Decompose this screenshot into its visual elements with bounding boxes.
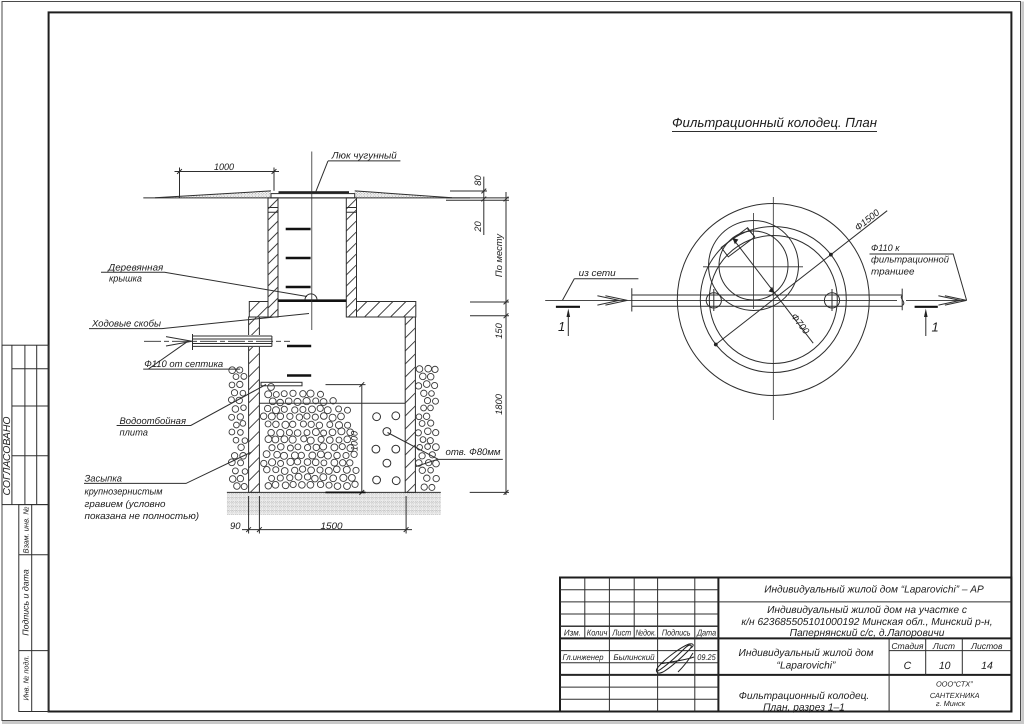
svg-text:отв. Ф80мм: отв. Ф80мм: [446, 447, 501, 458]
svg-text:показана не полностью): показана не полностью): [85, 511, 200, 522]
svg-text:Стадия: Стадия: [891, 641, 924, 651]
svg-text:крышка: крышка: [109, 273, 142, 284]
svg-text:Ходовые скобы: Ходовые скобы: [91, 319, 161, 330]
svg-text:Деревянная: Деревянная: [107, 262, 163, 273]
svg-text:Папернянский с/с, д.Лапоровичи: Папернянский с/с, д.Лапоровичи: [790, 628, 945, 639]
svg-text:фильтрационной: фильтрационной: [871, 254, 950, 265]
svg-text:План, разрез 1–1: План, разрез 1–1: [763, 703, 845, 714]
svg-text:Взам. инв. №: Взам. инв. №: [21, 507, 30, 554]
svg-text:Люк чугунный: Люк чугунный: [331, 151, 398, 162]
svg-text:Изм.: Изм.: [564, 627, 581, 637]
svg-text:По месту: По месту: [493, 233, 504, 277]
svg-text:Индивидуальный жилой дом “Lapa: Индивидуальный жилой дом “Laparovichi” –…: [764, 584, 984, 595]
svg-text:10: 10: [939, 660, 951, 672]
svg-text:09.25: 09.25: [697, 653, 716, 662]
svg-text:1: 1: [558, 319, 565, 334]
svg-text:Лист: Лист: [612, 627, 632, 637]
svg-text:№док.: №док.: [636, 627, 657, 637]
svg-text:Фильтрационный колодец.: Фильтрационный колодец.: [739, 691, 870, 702]
svg-text:Лист: Лист: [932, 641, 955, 651]
svg-text:С: С: [904, 660, 912, 672]
svg-text:СОГЛАСОВАНО: СОГЛАСОВАНО: [2, 416, 13, 495]
svg-text:Индивидуальный жилой дом на уч: Индивидуальный жилой дом на участке с: [767, 605, 967, 616]
svg-text:Былинский: Былинский: [613, 653, 655, 662]
svg-text:Инв. № подл.: Инв. № подл.: [21, 656, 30, 701]
svg-text:Индивидуальный жилой дом: Индивидуальный жилой дом: [739, 648, 874, 659]
svg-text:гравием (условно: гравием (условно: [85, 499, 166, 510]
svg-text:из сети: из сети: [579, 267, 617, 278]
svg-text:150: 150: [493, 322, 504, 338]
svg-text:90: 90: [230, 520, 241, 531]
svg-text:траншее: траншее: [871, 266, 915, 277]
svg-text:Фильтрационный колодец. План: Фильтрационный колодец. План: [672, 115, 877, 130]
svg-text:ООО“СТХ”: ООО“СТХ”: [936, 680, 973, 689]
svg-text:Подпись и дата: Подпись и дата: [20, 569, 30, 636]
svg-text:Колич: Колич: [587, 627, 608, 637]
svg-text:1000: 1000: [348, 430, 359, 451]
svg-text:1000: 1000: [214, 161, 235, 172]
svg-text:“Laparovichi”: “Laparovichi”: [777, 660, 836, 671]
svg-text:к/н 623685505101000192 Минская: к/н 623685505101000192 Минская обл., Мин…: [741, 617, 992, 628]
svg-text:г. Минск: г. Минск: [936, 699, 966, 708]
svg-text:Дата: Дата: [696, 627, 716, 637]
svg-text:Листов: Листов: [970, 641, 1003, 651]
svg-text:80: 80: [472, 175, 483, 186]
svg-text:1500: 1500: [321, 520, 344, 531]
svg-text:плита: плита: [120, 427, 149, 438]
svg-text:крупнозернистым: крупнозернистым: [85, 486, 163, 497]
svg-text:Ф110 к: Ф110 к: [871, 242, 900, 253]
svg-text:Ф110 от септика: Ф110 от септика: [144, 359, 223, 370]
svg-text:14: 14: [981, 660, 993, 672]
svg-text:Гл.инженер: Гл.инженер: [563, 653, 604, 662]
svg-text:20: 20: [472, 221, 483, 233]
svg-text:1800: 1800: [493, 393, 504, 415]
svg-text:1: 1: [932, 320, 939, 335]
svg-text:Подпись: Подпись: [662, 627, 691, 637]
